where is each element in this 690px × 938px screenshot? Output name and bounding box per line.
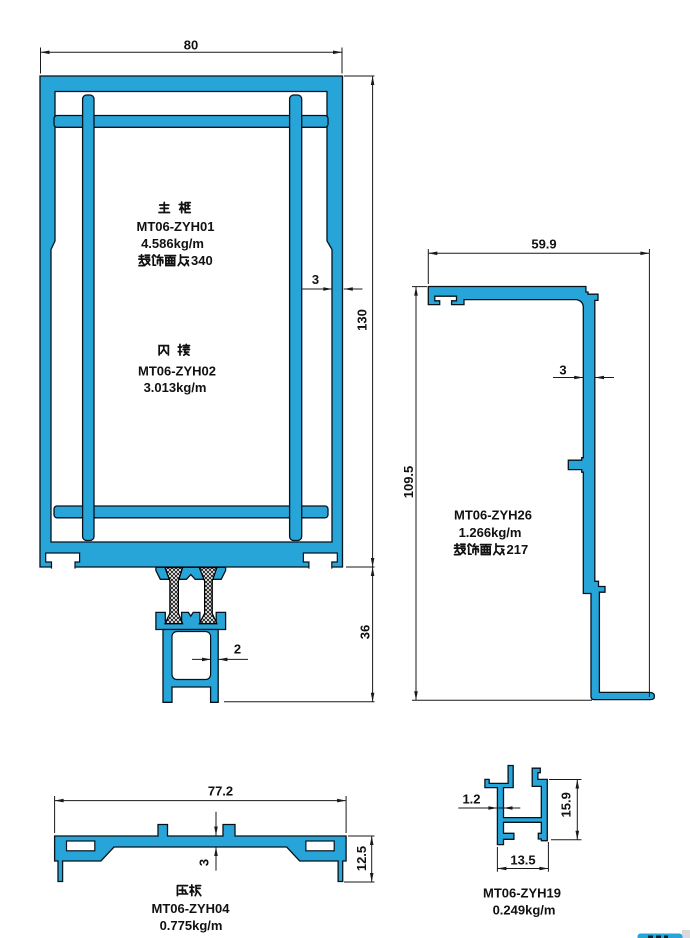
svg-text:13.5: 13.5 <box>510 853 535 868</box>
svg-text:4.586kg/m: 4.586kg/m <box>141 236 204 251</box>
svg-text:3: 3 <box>559 363 566 378</box>
svg-text:15.9: 15.9 <box>559 792 574 817</box>
svg-text:3: 3 <box>312 272 319 287</box>
svg-text:3.013kg/m: 3.013kg/m <box>144 380 207 395</box>
svg-text:MT06-ZYH01: MT06-ZYH01 <box>136 219 214 234</box>
svg-text:MT06-ZYH26: MT06-ZYH26 <box>454 508 532 523</box>
svg-text:36: 36 <box>358 625 373 639</box>
svg-text:80: 80 <box>184 38 198 53</box>
svg-text:1.266kg/m: 1.266kg/m <box>459 525 522 540</box>
svg-text:130: 130 <box>355 309 370 331</box>
svg-text:340: 340 <box>191 253 213 268</box>
svg-text:MT06-ZYH02: MT06-ZYH02 <box>138 364 216 379</box>
svg-text:12.5: 12.5 <box>354 846 369 871</box>
svg-text:2: 2 <box>234 642 241 657</box>
svg-text:3: 3 <box>197 859 212 866</box>
svg-text:77.2: 77.2 <box>208 784 233 799</box>
svg-text:59.9: 59.9 <box>531 237 556 252</box>
svg-text:0.775kg/m: 0.775kg/m <box>160 918 223 933</box>
svg-text:MT06-ZYH19: MT06-ZYH19 <box>483 886 561 901</box>
svg-text:MT06-ZYH04: MT06-ZYH04 <box>151 901 230 916</box>
svg-text:217: 217 <box>507 542 529 557</box>
svg-text:109.5: 109.5 <box>401 466 416 499</box>
svg-text:1.2: 1.2 <box>462 792 480 807</box>
svg-text:0.249kg/m: 0.249kg/m <box>493 903 556 918</box>
